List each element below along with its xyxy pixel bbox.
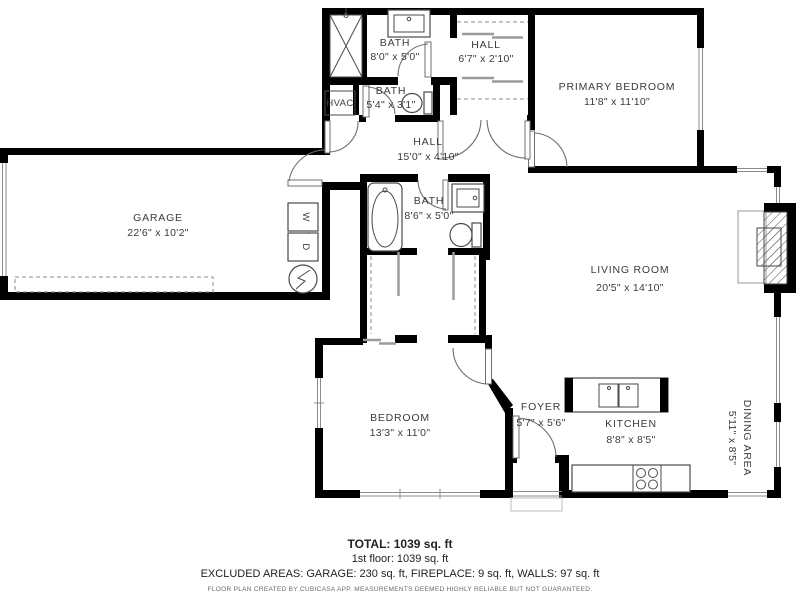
dims-bath-middle: 8'6" x 5'0" bbox=[404, 210, 453, 222]
door-garage bbox=[288, 150, 326, 186]
window-bedroom-bottom bbox=[360, 489, 480, 499]
label-dryer: D bbox=[300, 243, 311, 250]
label-washer: W bbox=[300, 212, 311, 221]
label-bath-middle: BATH bbox=[414, 195, 444, 207]
label-garage: GARAGE bbox=[133, 212, 183, 224]
label-living-room: LIVING ROOM bbox=[591, 264, 670, 276]
label-bedroom: BEDROOM bbox=[370, 412, 430, 424]
label-dining-area: DINING AREA bbox=[741, 400, 753, 476]
kitchen-counter bbox=[572, 465, 690, 492]
door-hall-closet-right bbox=[487, 120, 530, 159]
label-hall-main: HALL bbox=[413, 136, 442, 148]
label-hvac: HVAC bbox=[326, 98, 353, 109]
dims-dining-area: 5'11" x 8'5" bbox=[726, 411, 738, 466]
door-bedroom bbox=[453, 348, 492, 384]
floor-plan: BATH 8'0" x 5'0" HALL 6'7" x 2'10" PRIMA… bbox=[0, 0, 800, 530]
fireplace bbox=[738, 203, 796, 293]
excluded-areas-text: EXCLUDED AREAS: GARAGE: 230 sq. ft, FIRE… bbox=[0, 567, 800, 582]
window-dining-right-2 bbox=[773, 422, 782, 467]
dims-living-room: 20'5" x 14'10" bbox=[596, 282, 664, 294]
sink-bath-top bbox=[388, 10, 430, 37]
window-dining-bottom bbox=[728, 489, 767, 499]
shower-stall bbox=[330, 8, 362, 77]
dims-hall-main: 15'0" x 4'10" bbox=[397, 151, 459, 163]
sink-bath-middle bbox=[452, 184, 484, 212]
dims-hall-closet: 6'7" x 2'10" bbox=[458, 53, 513, 65]
garage-storage-area bbox=[15, 277, 213, 292]
dims-bedroom: 13'3" x 11'0" bbox=[370, 427, 431, 439]
door-primary-bedroom bbox=[529, 131, 568, 167]
dims-kitchen: 8'8" x 8'5" bbox=[606, 434, 655, 446]
first-floor-text: 1st floor: 1039 sq. ft bbox=[0, 552, 800, 567]
label-hall-closet: HALL bbox=[471, 39, 500, 51]
label-kitchen: KITCHEN bbox=[605, 418, 657, 430]
entry-porch bbox=[511, 492, 562, 512]
dims-foyer: 5'7" x 5'6" bbox=[516, 417, 565, 429]
label-bath-powder: BATH bbox=[376, 85, 406, 97]
toilet-bath-middle bbox=[450, 223, 481, 247]
footer-summary: TOTAL: 1039 sq. ft 1st floor: 1039 sq. f… bbox=[0, 536, 800, 593]
window-dining-right-1 bbox=[773, 317, 782, 403]
label-bath-top: BATH bbox=[380, 37, 410, 49]
label-primary-bedroom: PRIMARY BEDROOM bbox=[559, 81, 676, 93]
window-living-top bbox=[737, 165, 767, 174]
water-heater bbox=[289, 265, 317, 293]
floor-plan-svg: BATH 8'0" x 5'0" HALL 6'7" x 2'10" PRIMA… bbox=[0, 0, 800, 530]
window-garage-left bbox=[0, 163, 9, 276]
dims-primary-bedroom: 11'8" x 11'10" bbox=[584, 96, 650, 108]
dims-bath-powder: 5'4" x 3'1" bbox=[366, 99, 415, 111]
label-foyer: FOYER bbox=[521, 401, 561, 413]
kitchen-island bbox=[565, 378, 668, 412]
total-area-text: TOTAL: 1039 sq. ft bbox=[0, 536, 800, 552]
dims-bath-top: 8'0" x 5'0" bbox=[370, 51, 419, 63]
bathtub bbox=[368, 183, 402, 251]
disclaimer-text: FLOOR PLAN CREATED BY CUBICASA APP. MEAS… bbox=[0, 586, 800, 593]
window-bedroom-left bbox=[314, 378, 324, 428]
window-primary-right bbox=[696, 48, 705, 130]
door-hvac bbox=[325, 121, 358, 153]
dims-garage: 22'6" x 10'2" bbox=[127, 227, 189, 239]
